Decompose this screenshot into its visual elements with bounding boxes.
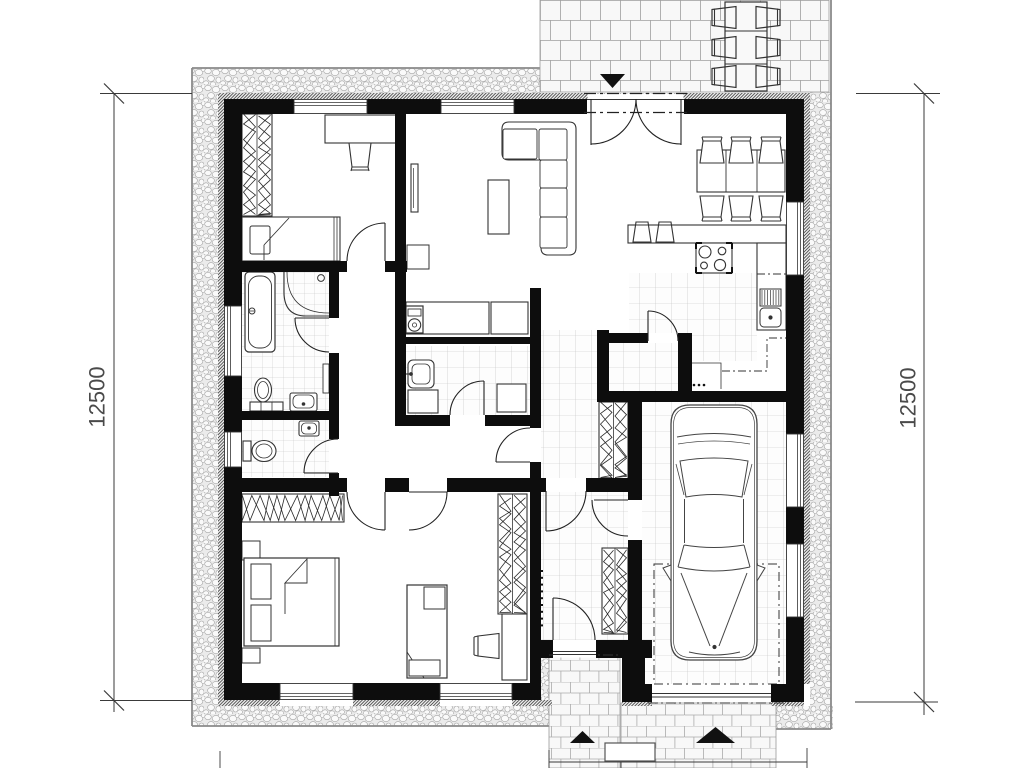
svg-text:12500: 12500 (84, 366, 109, 427)
svg-text:12500: 12500 (895, 367, 920, 428)
